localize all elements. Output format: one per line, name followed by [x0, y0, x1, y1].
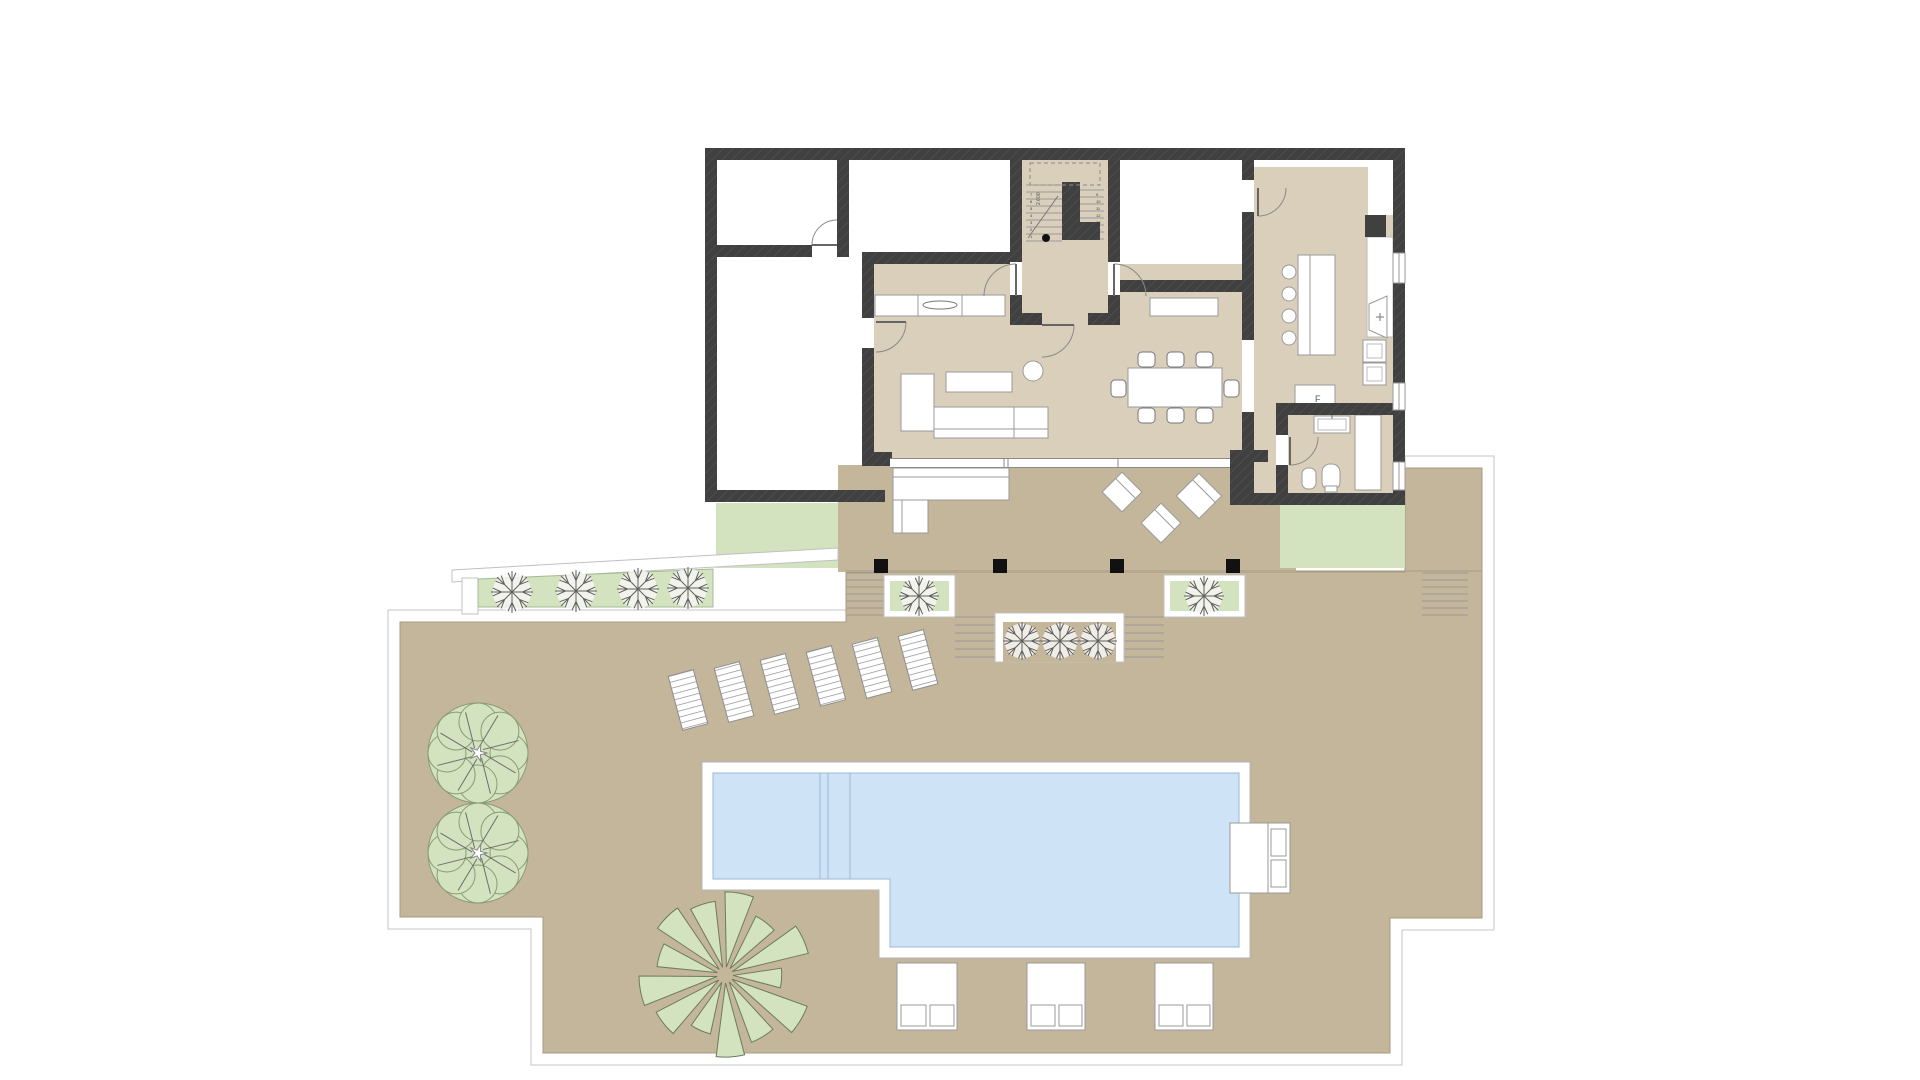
planter-tree	[899, 576, 939, 616]
stair-number-right: 10	[1096, 199, 1101, 204]
oven-inner	[1367, 344, 1382, 358]
wall-stair-right-upper	[1108, 160, 1120, 262]
bidet	[1302, 468, 1316, 489]
door-gap	[812, 245, 837, 257]
dining-chair	[1138, 352, 1155, 367]
wall-kitchen-left-b	[1242, 212, 1254, 340]
window-right-wall	[1393, 383, 1405, 410]
door-gap	[862, 318, 874, 348]
dining-chair	[1167, 408, 1184, 423]
dining-chair	[1224, 380, 1239, 397]
round-tree	[428, 803, 528, 903]
floor-plan-drawing: F2.600123456791011121316	[0, 0, 1920, 1080]
planter-shrub	[491, 571, 533, 613]
dining-chair	[1196, 408, 1213, 423]
outer-wall-bottom-left	[705, 490, 885, 502]
wall-stair-left-upper	[1010, 160, 1022, 262]
planter-cap-left	[462, 578, 478, 614]
outer-wall-left	[705, 148, 717, 502]
wall-stair-left-lower	[1010, 295, 1022, 325]
window-bathroom	[1393, 462, 1405, 490]
wall-living-top	[862, 252, 1022, 264]
terrace-daybed-pillow	[901, 1005, 926, 1026]
terrace-daybed-pillow	[1031, 1005, 1055, 1026]
coffee-table	[946, 372, 1012, 392]
planter-shrub	[555, 570, 597, 612]
dining-chair	[1196, 352, 1213, 367]
vanity-basin	[1318, 419, 1346, 430]
veranda-post	[1226, 559, 1240, 573]
pool-daybed-pillow	[1271, 829, 1286, 856]
outer-wall-top	[705, 148, 1405, 160]
wall-bathroom-left-b	[1276, 465, 1288, 493]
oven-inner	[1367, 367, 1382, 381]
wall-bathroom-left-a	[1276, 415, 1288, 435]
planter-shrub	[667, 567, 709, 609]
bar-stool	[1282, 287, 1296, 301]
wall-room-b-right-lower	[862, 348, 874, 452]
wall-hall-bottom-left	[1022, 313, 1042, 325]
wall-stub-glass-left	[862, 452, 892, 466]
lawn-patch-right	[1280, 505, 1405, 568]
pool-daybed-pillow	[1271, 860, 1286, 887]
terrace-daybed-pillow	[1059, 1005, 1082, 1026]
door-gap	[1276, 435, 1288, 465]
veranda-post	[874, 559, 888, 573]
toilet-base	[1325, 486, 1337, 492]
wall-stair-right-lower	[1108, 295, 1120, 325]
outer-wall-right	[1393, 148, 1405, 505]
dining-table	[1128, 368, 1222, 407]
kitchen-island	[1298, 255, 1335, 355]
stair-number-right: 12	[1096, 213, 1101, 218]
veranda-sofa-return	[893, 500, 928, 533]
terrace-daybed-pillow	[1187, 1005, 1210, 1026]
stair-number-right: 16	[1096, 227, 1101, 232]
wall-bathroom-top	[1276, 403, 1393, 415]
terrace-daybed-pillow	[930, 1005, 954, 1026]
stair-number-right: 13	[1096, 220, 1101, 225]
dining-chair	[1111, 380, 1126, 397]
wall-room-b-right-upper	[862, 257, 874, 318]
stair-start-dot	[1042, 234, 1050, 242]
central-planter-shrub	[1041, 622, 1079, 660]
wall-room-d-bottom	[1120, 280, 1242, 292]
wall-kitchen-left-c	[1242, 412, 1254, 493]
door-gap	[1242, 180, 1254, 212]
glass-wall-living	[890, 458, 1230, 468]
armchair	[901, 374, 934, 431]
planter-shrub	[617, 568, 659, 610]
floor-lobby	[1254, 340, 1276, 493]
central-planter-shrub	[1079, 622, 1117, 660]
tv-screen	[923, 301, 957, 309]
dining-chair	[1167, 352, 1184, 367]
floor-plan-canvas: F2.600123456791011121316	[0, 0, 1920, 1080]
door-room-a	[812, 220, 837, 245]
veranda-post	[1110, 559, 1124, 573]
wall-kitchen-left-a	[1242, 160, 1254, 180]
veranda-sofa	[893, 468, 1009, 500]
fridge-label: F	[1315, 394, 1321, 404]
terrace-daybed-pillow	[1159, 1005, 1183, 1026]
bar-stool	[1282, 331, 1296, 345]
dining-chair	[1138, 408, 1155, 423]
sideboard	[1150, 298, 1218, 316]
central-planter-shrub	[1003, 622, 1041, 660]
wall-room-a-bottom	[717, 245, 812, 257]
bar-stool	[1282, 265, 1296, 279]
kitchen-flue	[1365, 215, 1386, 237]
window-right-wall	[1393, 253, 1405, 283]
outer-wall-bottom-right	[1230, 493, 1405, 505]
round-tree	[428, 703, 528, 803]
shower	[1355, 415, 1381, 490]
side-table	[1023, 361, 1043, 381]
wall-room-a-right	[837, 160, 849, 257]
stair-height-label: 2.600	[1036, 192, 1042, 205]
sofa	[934, 407, 1048, 438]
floor-vestibule	[1254, 167, 1368, 215]
veranda-post	[993, 559, 1007, 573]
planter-tree	[1184, 576, 1224, 616]
wall-hall-bottom-right	[1088, 313, 1108, 325]
bar-stool	[1282, 309, 1296, 323]
floor-living-room	[874, 264, 1242, 463]
